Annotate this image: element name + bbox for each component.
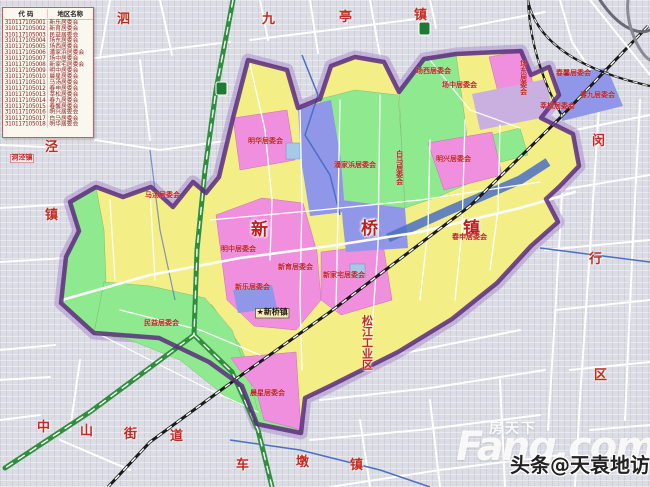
area-sijing-2: 泾	[45, 141, 58, 155]
area-sijing-1: 泗	[117, 13, 130, 27]
legend-row: 310117105018明华居委会	[5, 122, 93, 128]
committee-xinsong: 莘松居委会	[540, 103, 575, 110]
area-minhang-3: 区	[594, 369, 607, 383]
legend-row-code: 310117105018	[5, 122, 48, 128]
area-dongjing: 洞泾镇	[10, 154, 34, 163]
area-zhongshan-1: 中	[37, 421, 50, 435]
committee-minyi: 民益居委会	[144, 320, 179, 327]
town-name-char-qiao: 桥	[361, 221, 378, 239]
committee-changzhong: 场中居委会	[442, 82, 477, 89]
committee-chunjiu: 春九居委会	[580, 92, 615, 99]
map-canvas	[0, 0, 650, 487]
map-screenshot: 新桥镇九亭镇泗泾镇洞泾镇闵行区松江工业区车墩镇中山街道★新桥镇马汤居委会民益居委…	[0, 0, 650, 487]
area-jiuting-2: 亭	[339, 11, 352, 25]
town-name-char-xin: 新	[251, 222, 268, 240]
legend-header-code: 代 码	[5, 9, 48, 18]
committee-minghua: 明华居委会	[248, 138, 283, 145]
legend-header: 代 码 地区名称	[5, 9, 93, 19]
legend-row-name: 明华居委会	[48, 122, 93, 128]
area-minhang-2: 行	[589, 253, 602, 267]
area-songjiang-industrial: 松江工业区	[361, 315, 373, 370]
seat-xinqiao-town: ★新桥镇	[255, 308, 289, 318]
committee-xinle: 新乐居委会	[235, 284, 270, 291]
area-zhongshan-4: 道	[170, 430, 183, 444]
committee-changxi: 场西居委会	[416, 68, 451, 75]
committee-chenxing: 晨星居委会	[250, 390, 285, 397]
committee-mingzhong: 明中居委会	[221, 246, 256, 253]
committee-matang: 马汤居委会	[145, 192, 180, 199]
area-zhongshan-2: 山	[80, 425, 93, 439]
area-chedun-2: 墩	[296, 456, 309, 470]
committee-xinyu: 新育居委会	[278, 264, 313, 271]
area-jiuting-1: 九	[262, 13, 275, 27]
area-sijing-3: 镇	[45, 209, 58, 223]
area-chedun-1: 车	[236, 459, 249, 473]
area-jiuting-3: 镇	[414, 9, 427, 23]
committee-panjiabang: 潘家浜居委会	[334, 162, 376, 169]
interchange	[590, 0, 650, 75]
committee-chunxin: 春馨居委会	[556, 70, 591, 77]
legend-panel: 代 码 地区名称 310117105001新乐居委会310117105002新育…	[2, 7, 94, 138]
area-chedun-3: 镇	[350, 459, 363, 473]
committee-baima: 白马居委会	[394, 150, 401, 185]
watermark-byline: 头条@天袁地访	[510, 449, 650, 478]
legend-header-name: 地区名称	[48, 9, 93, 18]
committee-chunshen: 春申居委会	[452, 234, 487, 241]
committee-xinjiazhai: 新家宅居委会	[323, 272, 365, 279]
area-zhongshan-3: 街	[124, 428, 137, 442]
committee-mingxing: 明兴居委会	[436, 156, 471, 163]
area-minhang-1: 闵	[592, 135, 605, 149]
committee-changdong: 场东居委会	[518, 60, 525, 95]
